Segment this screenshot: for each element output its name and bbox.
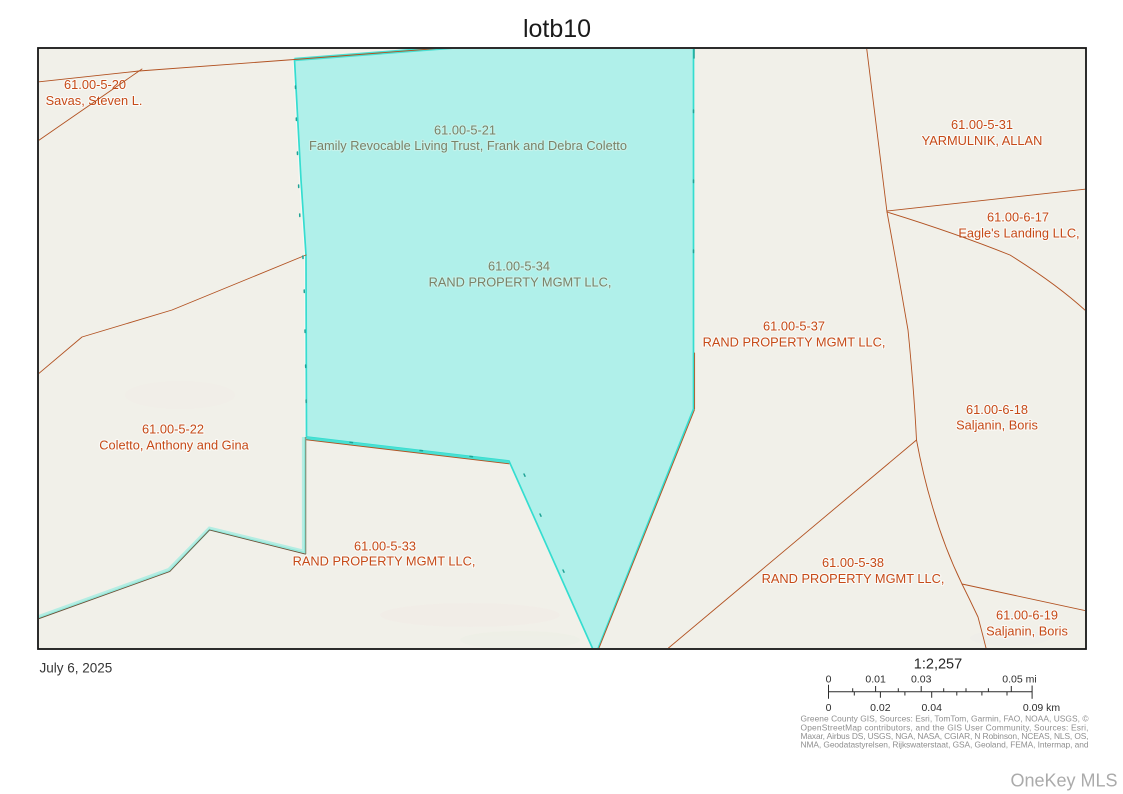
svg-text:61.00-5-31: 61.00-5-31 bbox=[951, 117, 1013, 132]
svg-text:0.03: 0.03 bbox=[911, 673, 932, 685]
svg-text:0.04: 0.04 bbox=[921, 702, 942, 714]
svg-text:RAND PROPERTY MGMT LLC,: RAND PROPERTY MGMT LLC, bbox=[703, 335, 886, 350]
svg-text:Coletto, Anthony and Gina: Coletto, Anthony and Gina bbox=[99, 438, 249, 453]
svg-text:YARMULNIK, ALLAN: YARMULNIK, ALLAN bbox=[922, 133, 1043, 148]
svg-text:61.00-5-21: 61.00-5-21 bbox=[434, 123, 496, 138]
svg-text:Saljanin, Boris: Saljanin, Boris bbox=[986, 624, 1068, 639]
svg-text:61.00-6-19: 61.00-6-19 bbox=[996, 608, 1058, 623]
svg-text:OneKey MLS: OneKey MLS bbox=[1010, 771, 1117, 791]
svg-text:61.00-5-37: 61.00-5-37 bbox=[763, 319, 825, 334]
svg-text:61.00-5-38: 61.00-5-38 bbox=[822, 555, 884, 570]
svg-text:RAND PROPERTY MGMT LLC,: RAND PROPERTY MGMT LLC, bbox=[429, 275, 612, 290]
svg-text:0.01: 0.01 bbox=[865, 673, 886, 685]
svg-text:0.02: 0.02 bbox=[870, 702, 891, 714]
svg-text:Family Revocable Living Trust,: Family Revocable Living Trust, Frank and… bbox=[309, 138, 627, 153]
svg-text:lotb10: lotb10 bbox=[523, 15, 591, 43]
svg-text:61.00-6-17: 61.00-6-17 bbox=[987, 210, 1049, 225]
svg-text:0.09 km: 0.09 km bbox=[1023, 702, 1061, 714]
svg-text:61.00-5-34: 61.00-5-34 bbox=[488, 259, 550, 274]
svg-text:61.00-6-18: 61.00-6-18 bbox=[966, 402, 1028, 417]
svg-text:Eagle's Landing LLC,: Eagle's Landing LLC, bbox=[958, 226, 1079, 241]
svg-text:NMA, Geodatastyrelsen, Rijkswa: NMA, Geodatastyrelsen, Rijkswaterstaat, … bbox=[801, 740, 1089, 750]
svg-text:RAND PROPERTY MGMT LLC,: RAND PROPERTY MGMT LLC, bbox=[762, 571, 945, 586]
svg-text:Savas, Steven L.: Savas, Steven L. bbox=[46, 93, 143, 108]
svg-text:July 6, 2025: July 6, 2025 bbox=[40, 661, 113, 676]
svg-text:61.00-5-20: 61.00-5-20 bbox=[64, 77, 126, 92]
svg-text:61.00-5-22: 61.00-5-22 bbox=[142, 422, 204, 437]
svg-text:RAND PROPERTY MGMT LLC,: RAND PROPERTY MGMT LLC, bbox=[293, 554, 476, 569]
svg-text:Saljanin, Boris: Saljanin, Boris bbox=[956, 418, 1038, 433]
svg-text:61.00-5-33: 61.00-5-33 bbox=[354, 539, 416, 554]
svg-text:1:2,257: 1:2,257 bbox=[914, 657, 962, 673]
svg-text:0: 0 bbox=[826, 702, 832, 714]
svg-text:0.05 mi: 0.05 mi bbox=[1002, 673, 1036, 685]
svg-text:0: 0 bbox=[826, 673, 832, 685]
